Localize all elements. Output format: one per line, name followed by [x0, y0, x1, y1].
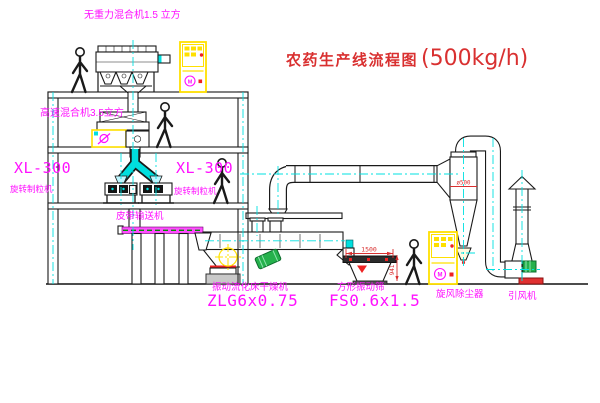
motor-symbol: M [438, 273, 443, 279]
label-granulator-right-name: 旋转制粒机 [174, 187, 217, 196]
label-belt-conveyor: 皮带输送机 [116, 212, 164, 222]
label-granulator-left-model: XL-300 [14, 161, 71, 177]
label-fan: 引风机 [508, 292, 537, 302]
process-flow-screenshot: 1500 941 ø500 [0, 0, 600, 403]
worker-figure-roof [72, 48, 87, 92]
worker-figure-floor2 [157, 103, 172, 147]
worker-figure-ground [406, 240, 421, 284]
control-cabinet-ground: M [429, 232, 457, 284]
drawing-title: 农药生产线流程图 (500kg/h) [286, 46, 528, 71]
motor-symbol: M [188, 79, 193, 85]
control-cabinet-roof: M [180, 42, 206, 92]
title-capacity: (500kg/h) [421, 46, 528, 71]
label-screen-model: FS0.6x1.5 [329, 293, 420, 310]
fluid-bed-dryer [195, 209, 355, 284]
y-splitter-pipe [121, 149, 156, 180]
exhaust-duct [269, 165, 438, 218]
label-granulator-right-model: XL-300 [176, 161, 233, 177]
label-cyclone: 旋风除尘器 [436, 290, 484, 300]
induced-draft-fan [505, 261, 543, 284]
label-dryer-model: ZLG6x0.75 [207, 293, 298, 310]
dim-941: 941 [389, 264, 396, 275]
dryer-motor [255, 249, 282, 270]
label-granulator-left-name: 旋转制粒机 [10, 185, 53, 194]
label-top-mixer: 无重力混合机1.5 立方 [84, 11, 181, 22]
dim-1500: 1500 [361, 246, 377, 254]
label-second-mixer: 高速混合机3.5立方 [40, 109, 124, 120]
title-text: 农药生产线流程图 [286, 49, 418, 70]
